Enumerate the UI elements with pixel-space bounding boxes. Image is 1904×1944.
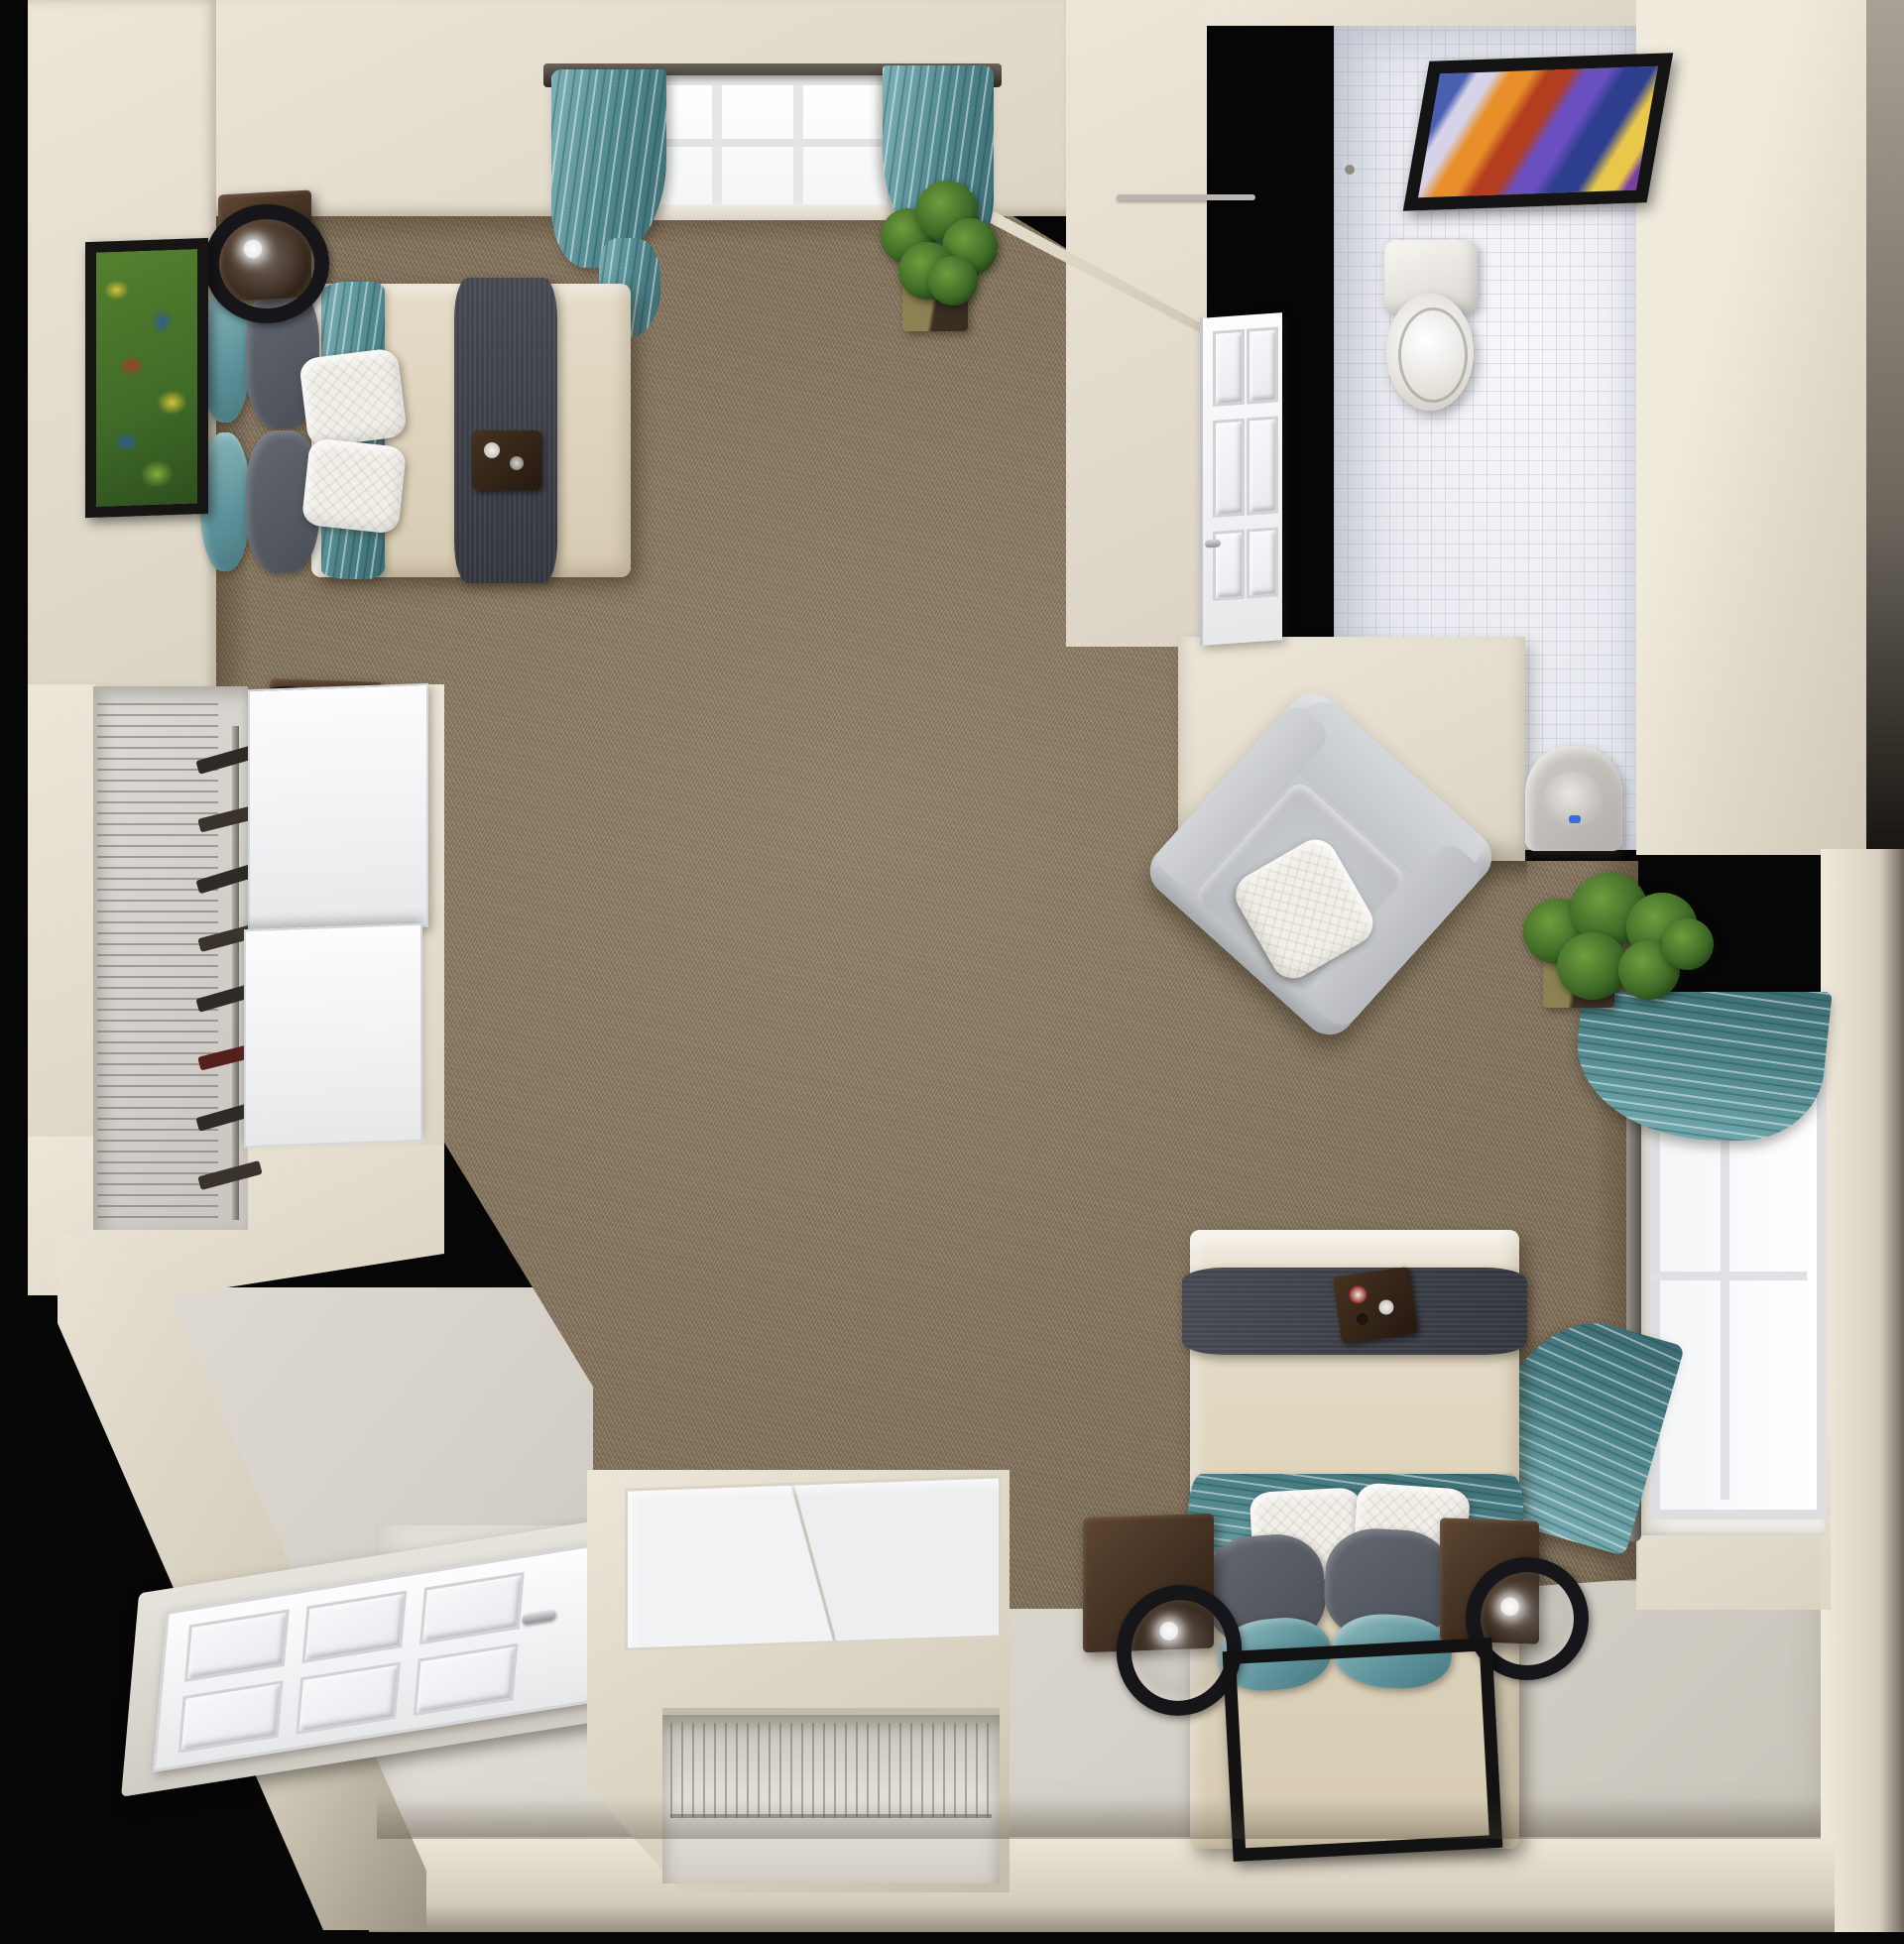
- wall-bathroom-right: [1636, 0, 1866, 855]
- area-rug: [1223, 1638, 1503, 1862]
- wall-right-lower: [1821, 849, 1904, 1932]
- floor-plan-scene: [0, 0, 1904, 1944]
- door-handle: [522, 1609, 555, 1625]
- wall-bathroom-top-strip: [1205, 0, 1641, 26]
- sprinkler-dot: [1345, 165, 1355, 175]
- pillow: [301, 437, 408, 535]
- closet-sliding-door: [244, 923, 422, 1148]
- door-handle: [1205, 539, 1221, 547]
- wardrobe-opening: [662, 1708, 1000, 1883]
- wardrobe-top-panels: [625, 1475, 1002, 1650]
- closet-wire-shelving: [97, 694, 218, 1226]
- closet-shoe-pole: [232, 726, 239, 1220]
- potted-plant: [1523, 871, 1718, 1016]
- closet-sliding-door: [248, 683, 428, 933]
- bed-1: [194, 284, 631, 577]
- table-lamp: [204, 204, 329, 323]
- bathroom-door: [1200, 312, 1282, 646]
- towel-bar: [1117, 194, 1255, 200]
- wardrobe-wire-shelf: [670, 1723, 992, 1818]
- wall-artwork: [85, 238, 208, 518]
- toilet: [1382, 238, 1480, 413]
- wall-bottom: [369, 1837, 1835, 1932]
- top-window-sash-bar: [640, 139, 888, 147]
- bed-1-serving-tray: [472, 430, 541, 490]
- pillow: [298, 347, 408, 448]
- toilet-seat-line: [1398, 307, 1468, 403]
- bathroom-artwork: [1403, 53, 1673, 211]
- potted-plant: [877, 179, 1002, 317]
- bed-2-serving-tray: [1333, 1267, 1419, 1344]
- bathroom-sink: [1525, 746, 1622, 851]
